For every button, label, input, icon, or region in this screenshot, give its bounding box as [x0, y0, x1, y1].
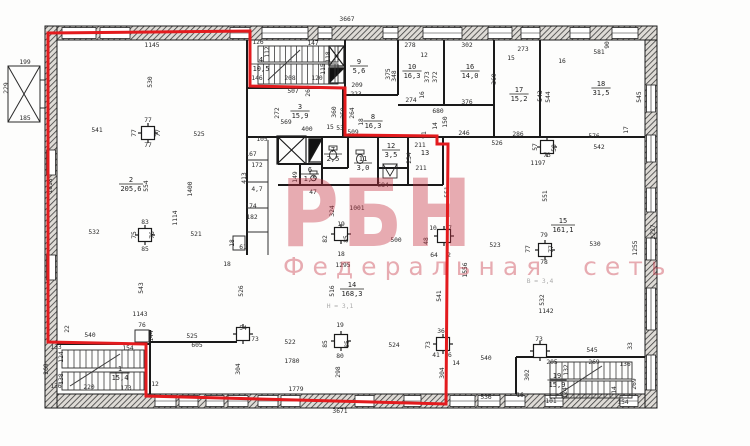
scanned-floor-plan-page: 3667114590581162731530212278126147112118…	[0, 0, 750, 446]
lease-boundary-overlay	[0, 0, 750, 446]
red-boundary-line	[48, 31, 448, 404]
